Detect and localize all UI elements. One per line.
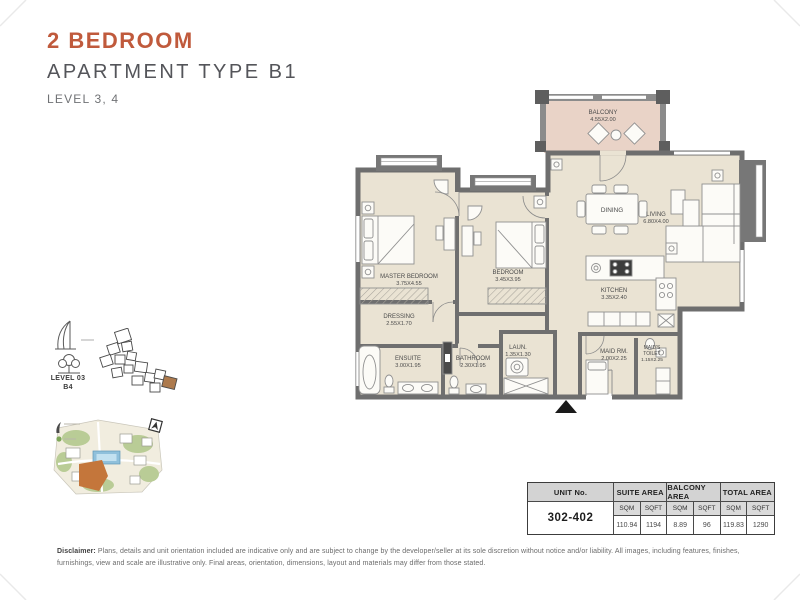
building-keyplan [88, 328, 178, 406]
balcony-label: BALCONY [589, 110, 618, 116]
floor-plan: BALCONY 4.55X2.00 DINING LIVING 6.80X4.0… [340, 85, 772, 417]
total-sqm-value: 119.83 [721, 516, 748, 534]
living-bay-window [739, 160, 766, 242]
balcony-floor [544, 99, 664, 153]
dressing-dims: 2.55X1.70 [386, 321, 412, 327]
master-bedroom-dims: 3.75X4.55 [396, 281, 422, 287]
maid-toilet-label-2: TOILET [643, 351, 660, 357]
bathroom-label: BATHROOM [456, 356, 490, 362]
maid-room-dims: 2.00X2.25 [601, 356, 627, 362]
balcony-sqft-value: 96 [694, 516, 721, 534]
apartment-type: APARTMENT TYPE B1 [47, 61, 298, 84]
unit-no-header: UNIT No. [528, 483, 614, 502]
kitchen-island [586, 256, 664, 280]
balcony-dims: 4.55X2.00 [590, 117, 616, 123]
maid-bed [586, 360, 608, 394]
bedroom-bay-window [470, 175, 536, 191]
master-bay-window [376, 155, 442, 171]
suite-sqft-header: SQFT [641, 502, 668, 516]
disclaimer-text: Plans, details and unit orientation incl… [57, 548, 740, 567]
area-table: UNIT No. SUITE AREA BALCONY AREA TOTAL A… [527, 482, 775, 535]
balcony-area-header: BALCONY AREA [667, 483, 720, 502]
entrance-arrow [555, 400, 577, 413]
total-sqft-header: SQFT [747, 502, 774, 516]
page-title: 2 BEDROOM [47, 28, 298, 54]
tree-icon [58, 355, 80, 374]
bedroom-wardrobe [488, 288, 546, 304]
suite-area-header: SUITE AREA [614, 483, 667, 502]
bedroom-dims: 3.45X3.95 [495, 277, 521, 283]
suite-sqm-value: 110.94 [614, 516, 641, 534]
site-map [46, 414, 168, 504]
unit-no-value: 302-402 [528, 502, 614, 534]
disclaimer-label: Disclaimer: [57, 548, 96, 555]
suite-sqm-header: SQM [614, 502, 641, 516]
header: 2 BEDROOM APARTMENT TYPE B1 LEVEL 3, 4 [47, 28, 298, 106]
dining-label: DINING [601, 207, 623, 214]
north-arrow-icon [149, 419, 162, 432]
keyplan-level: LEVEL 03 [46, 375, 90, 384]
master-bedroom-label: MASTER BEDROOM [380, 274, 438, 280]
ensuite-label: ENSUITE [395, 356, 421, 362]
balcony-sqm-value: 8.89 [667, 516, 694, 534]
keyplan-level-label: LEVEL 03 B4 [46, 375, 90, 393]
suite-sqft-value: 1194 [641, 516, 668, 534]
bedroom-label: BEDROOM [492, 270, 523, 276]
maid-room-label: MAID RM. [600, 349, 628, 355]
maid-toilet-dims: 1.15X2.25 [641, 357, 663, 363]
bathroom-dims: 2.30X1.95 [460, 363, 486, 369]
living-dims: 6.80X4.00 [643, 219, 669, 225]
laundry-dims: 1.35X1.30 [505, 352, 531, 358]
kitchen-dims: 3.35X2.40 [601, 295, 627, 301]
balcony-sqft-header: SQFT [694, 502, 721, 516]
total-sqm-header: SQM [721, 502, 748, 516]
laundry-label: LAUN. [509, 345, 527, 351]
total-area-header: TOTAL AREA [721, 483, 774, 502]
disclaimer: Disclaimer: Plans, details and unit orie… [57, 546, 747, 569]
master-wardrobe [360, 288, 428, 304]
ensuite-dims: 3.00X1.95 [395, 363, 421, 369]
dressing-label: DRESSING [383, 314, 415, 320]
level-label: LEVEL 3, 4 [47, 92, 298, 106]
keyplan-building: B4 [46, 384, 90, 393]
balcony-sqm-header: SQM [667, 502, 694, 516]
keyplan-highlighted-building [162, 376, 177, 390]
kitchen-label: KITCHEN [601, 288, 627, 294]
living-label: LIVING [646, 212, 666, 218]
burj-icon [55, 321, 76, 349]
total-sqft-value: 1290 [747, 516, 774, 534]
